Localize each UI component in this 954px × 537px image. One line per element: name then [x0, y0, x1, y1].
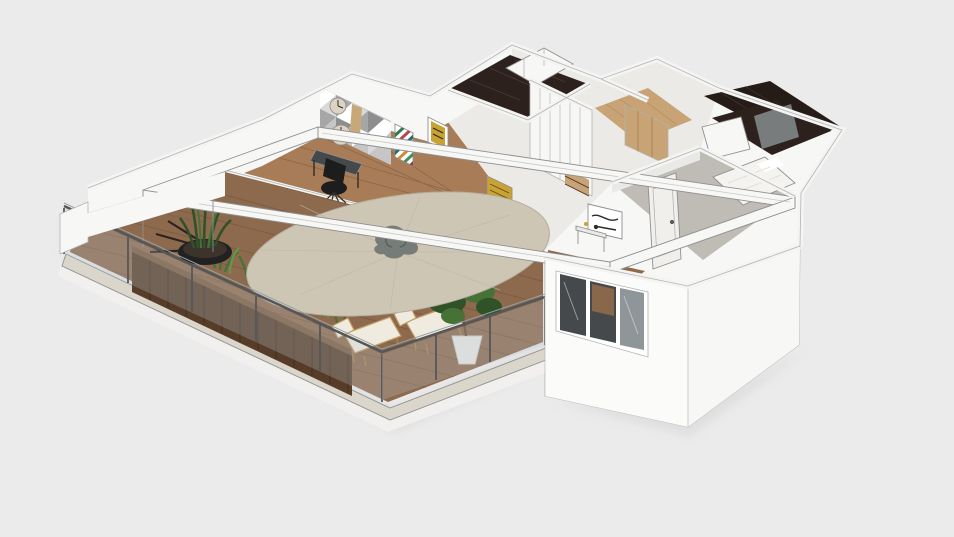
render-canvas[interactable]	[0, 0, 954, 537]
decor-item	[594, 225, 597, 228]
floorplan-3d-render[interactable]	[0, 0, 954, 537]
gold-vase	[584, 222, 588, 226]
wood-hand-decor	[350, 104, 362, 136]
interior-through-window	[592, 284, 614, 316]
door-handle	[671, 221, 674, 224]
